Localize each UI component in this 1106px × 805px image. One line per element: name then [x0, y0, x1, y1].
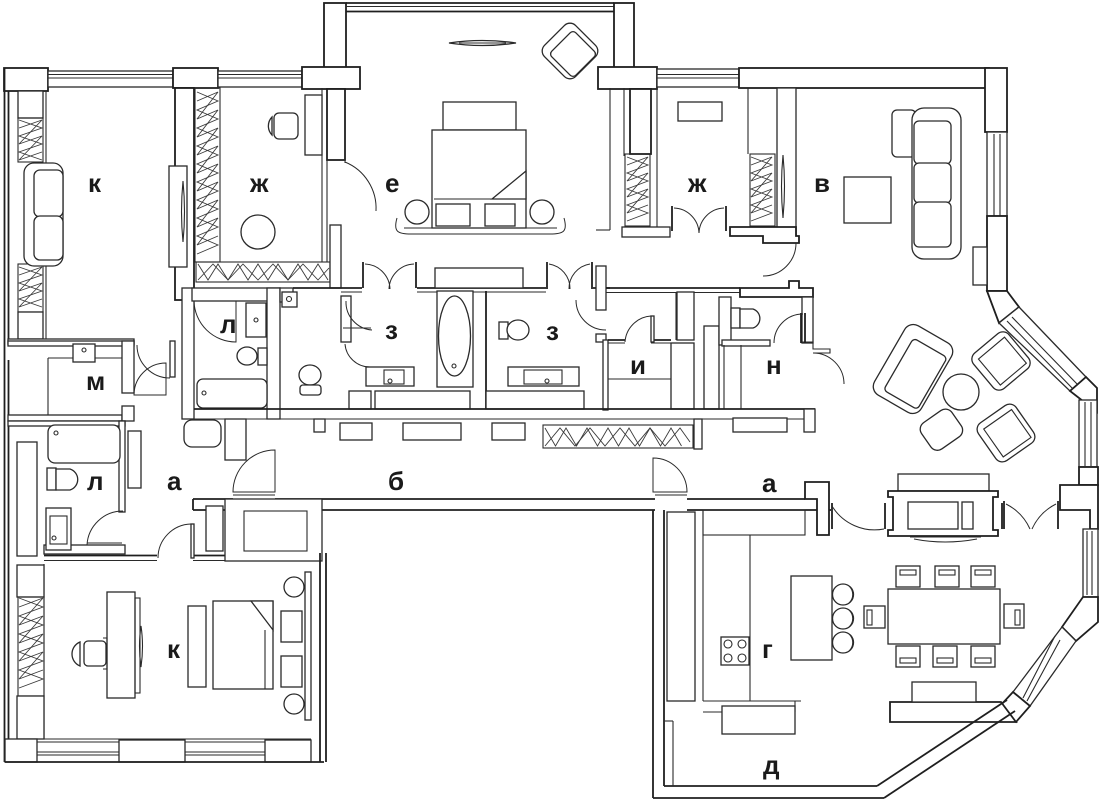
svg-text:м: м: [86, 366, 105, 396]
svg-text:н: н: [766, 350, 782, 380]
svg-text:а: а: [762, 468, 777, 498]
svg-text:ж: ж: [687, 168, 707, 198]
svg-text:л: л: [87, 466, 104, 496]
svg-text:е: е: [385, 168, 399, 198]
svg-text:л: л: [220, 309, 237, 339]
svg-text:в: в: [814, 168, 830, 198]
svg-text:к: к: [167, 634, 181, 664]
svg-text:з: з: [385, 315, 398, 345]
svg-text:г: г: [762, 634, 773, 664]
svg-text:а: а: [167, 466, 182, 496]
svg-text:и: и: [630, 350, 646, 380]
svg-text:к: к: [88, 168, 102, 198]
svg-text:б: б: [388, 466, 404, 496]
svg-text:д: д: [763, 750, 780, 780]
svg-text:ж: ж: [249, 168, 269, 198]
svg-text:з: з: [546, 316, 559, 346]
